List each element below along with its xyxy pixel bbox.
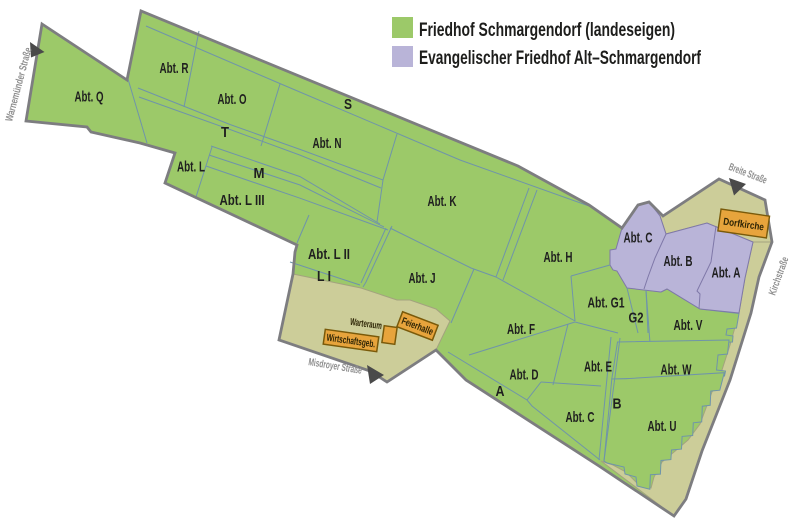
svg-text:B: B (613, 396, 622, 413)
svg-text:Abt. A: Abt. A (712, 265, 741, 282)
svg-text:Abt. J: Abt. J (409, 270, 436, 287)
svg-text:Friedhof Schmargendorf (landes: Friedhof Schmargendorf (landeseigen) (419, 19, 675, 41)
svg-text:Abt. C: Abt. C (566, 409, 595, 426)
svg-text:Abt. Q: Abt. Q (75, 89, 104, 106)
svg-text:Abt. L III: Abt. L III (220, 192, 265, 209)
svg-text:Abt. E: Abt. E (584, 359, 612, 376)
svg-text:Abt. L: Abt. L (177, 159, 205, 176)
svg-text:Abt. N: Abt. N (313, 135, 342, 152)
svg-text:L I: L I (317, 268, 331, 285)
svg-text:Abt. F: Abt. F (507, 321, 535, 338)
svg-text:Abt. W: Abt. W (661, 362, 693, 379)
svg-text:Abt. K: Abt. K (428, 193, 457, 210)
svg-text:Abt. R: Abt. R (160, 60, 189, 77)
svg-text:Abt. V: Abt. V (674, 317, 703, 334)
svg-text:Evangelischer Friedhof Alt–Sch: Evangelischer Friedhof Alt–Schmargendorf (419, 47, 701, 69)
svg-text:Abt. D: Abt. D (510, 367, 539, 384)
svg-text:Abt. C: Abt. C (624, 230, 653, 247)
svg-text:G2: G2 (629, 310, 644, 327)
svg-text:Abt. H: Abt. H (544, 249, 573, 266)
svg-text:Abt. L II: Abt. L II (308, 246, 350, 263)
svg-text:Abt. U: Abt. U (648, 418, 677, 435)
svg-text:M: M (254, 165, 265, 182)
svg-text:T: T (221, 124, 229, 141)
svg-text:A: A (496, 383, 505, 400)
svg-text:Abt. B: Abt. B (664, 253, 693, 270)
svg-text:Abt. G1: Abt. G1 (588, 295, 625, 312)
svg-text:S: S (344, 96, 352, 113)
svg-text:Kirchstraße: Kirchstraße (767, 255, 792, 297)
svg-text:Abt. O: Abt. O (218, 91, 247, 108)
